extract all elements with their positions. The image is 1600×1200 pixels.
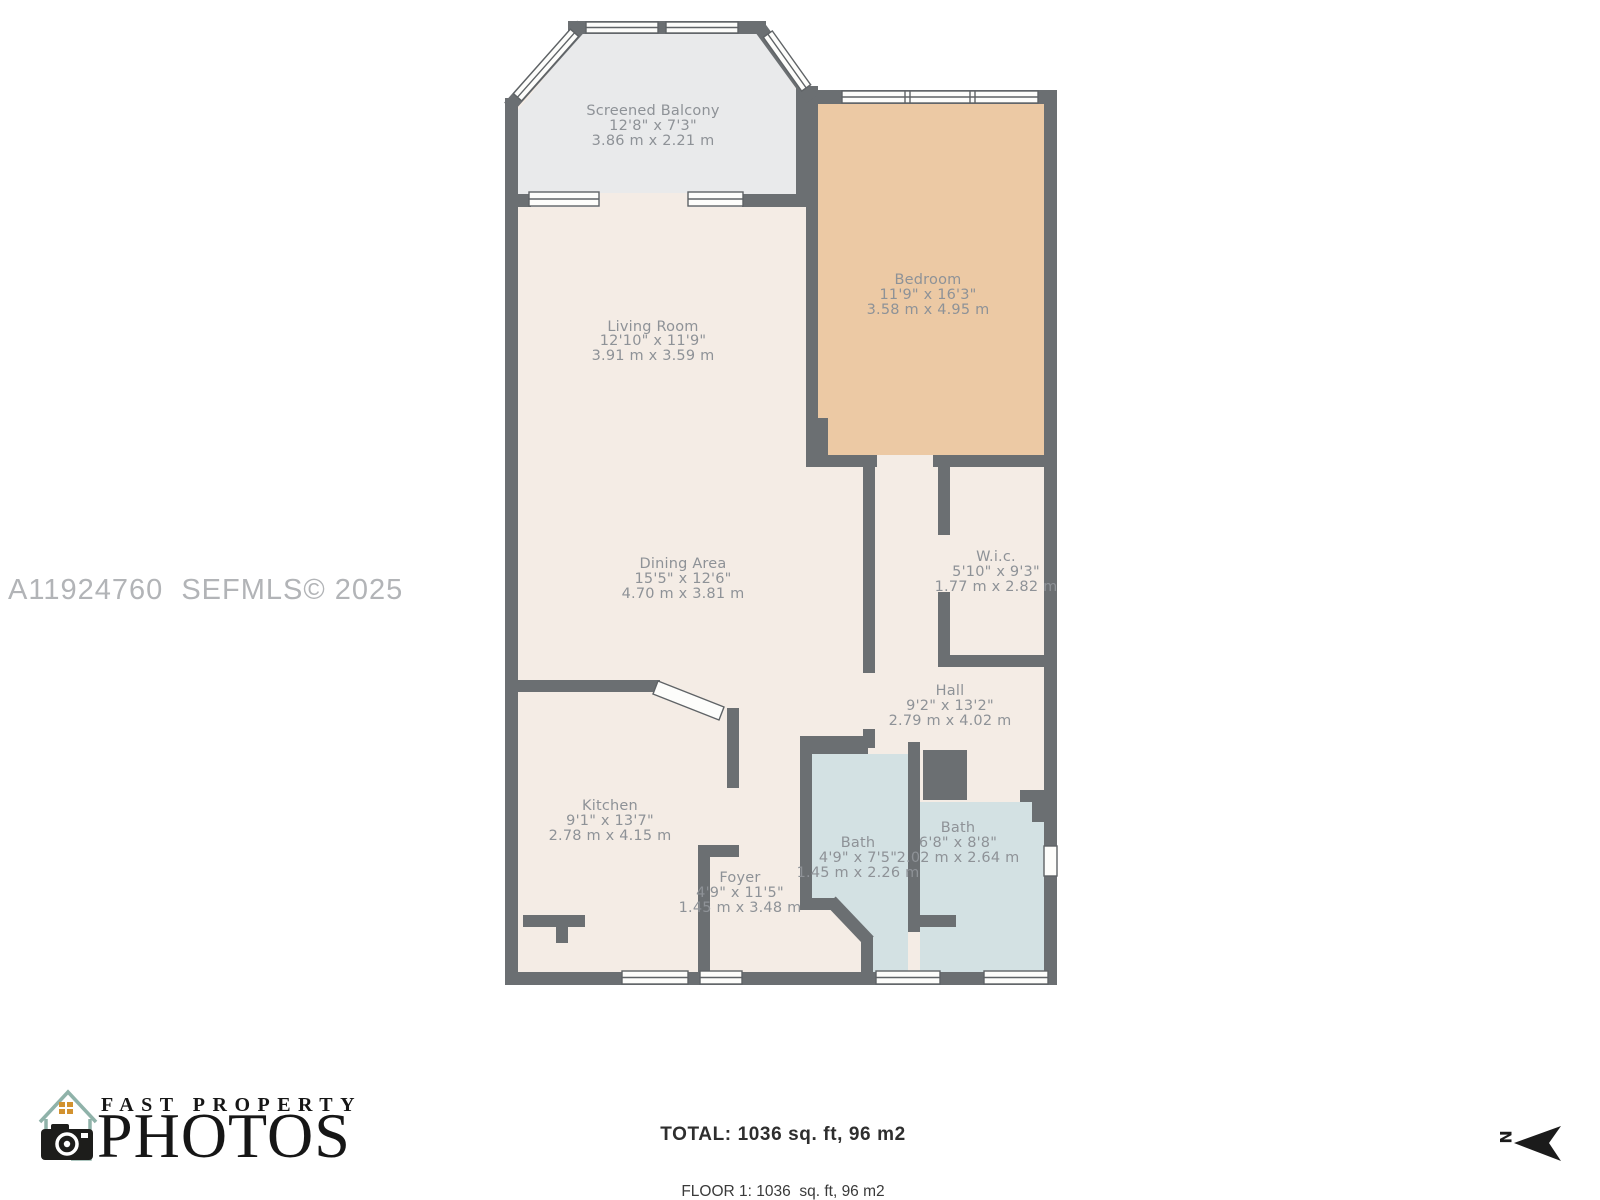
wall [908,915,956,927]
room-dim-imperial: 9'1" x 13'7" [566,813,654,829]
room-label-dining-area: Dining Area 15'5" x 12'6" 4.70 m x 3.81 … [622,556,745,602]
room-dim-imperial: 6'8" x 8'8" [919,835,997,851]
wall [505,194,531,207]
wall [1020,790,1056,802]
north-label: N [1496,1130,1515,1143]
room-dim-imperial: 11'9" x 16'3" [879,287,976,303]
room-dim-metric: 1.77 m x 2.82 m [935,579,1058,595]
window [984,971,1048,984]
room-name: W.i.c. [976,549,1016,565]
wall [556,927,568,943]
wall [938,592,950,660]
wall [806,418,828,458]
wall [806,742,868,754]
room-name: Bedroom [895,272,962,288]
room-dim-imperial: 5'10" x 9'3" [952,564,1040,580]
wall [938,467,950,535]
room-dim-metric: 3.58 m x 4.95 m [867,302,990,318]
balcony-opening-patch [600,193,688,208]
room-name: Hall [936,683,965,699]
north-arrow-icon [1514,1126,1561,1161]
floor-plan-page: Screened Balcony 12'8" x 7'3" 3.86 m x 2… [0,0,1600,1200]
logo-brand-line2: PHOTOS [97,1106,351,1166]
wall [505,972,1057,985]
window [1044,846,1057,876]
room-name: Bath [841,835,876,851]
wall [523,915,585,927]
wall [727,708,739,788]
wall [796,86,818,207]
wall [933,455,1056,467]
window [529,192,599,206]
wall [863,467,875,673]
room-dim-imperial: 9'2" x 13'2" [906,698,994,714]
wall [1032,802,1044,822]
room-dim-metric: 1.45 m x 3.48 m [679,900,802,916]
window [700,971,742,984]
room-dim-metric: 4.70 m x 3.81 m [622,586,745,602]
room-dim-metric: 2.02 m x 2.64 m [897,850,1020,866]
room-dim-imperial: 4'9" x 11'5" [696,885,784,901]
room-dim-metric: 3.86 m x 2.21 m [592,133,715,149]
wall [800,736,812,908]
wall [505,98,518,985]
house-window-icon [59,1102,73,1114]
room-dim-imperial: 4'9" x 7'5" [819,850,897,866]
wall [742,194,818,207]
area-summary: TOTAL: 1036 sq. ft, 96 m2 FLOOR 1: 1036 … [483,1088,1083,1200]
window [666,22,738,33]
room-name: Screened Balcony [586,103,719,119]
window [876,971,940,984]
room-dim-metric: 1.45 m x 2.26 m [797,865,920,881]
mls-watermark: A11924760 SEFMLS© 2025 [8,574,403,607]
room-label-living-room: Living Room 12'10" x 11'9" 3.91 m x 3.59… [592,319,715,364]
room-name: Foyer [719,870,760,886]
room-dim-metric: 2.78 m x 4.15 m [549,828,672,844]
room-dim-imperial: 12'8" x 7'3" [609,118,697,134]
floor-area-text: FLOOR 1: 1036 sq. ft, 96 m2 [483,1182,1083,1200]
total-area-text: TOTAL: 1036 sq. ft, 96 m2 [483,1124,1083,1146]
room-dim-imperial: 15'5" x 12'6" [634,571,731,587]
logo-icon [40,1092,96,1160]
window [842,91,1038,103]
room-dim-metric: 3.91 m x 3.59 m [592,348,715,364]
window [688,192,743,206]
room-name: Bath [941,820,976,836]
camera-icon [41,1124,93,1160]
room-dim-metric: 2.79 m x 4.02 m [889,713,1012,729]
window [622,971,688,984]
room-name: Kitchen [582,798,638,814]
window [586,22,658,33]
utility-shaft [923,750,967,800]
room-bath-large-floor [920,802,1044,972]
wall [518,680,660,692]
wall [938,655,1056,667]
room-dim-imperial: 12'10" x 11'9" [600,333,707,349]
room-name: Dining Area [640,556,727,572]
compass: N [1496,1126,1561,1161]
